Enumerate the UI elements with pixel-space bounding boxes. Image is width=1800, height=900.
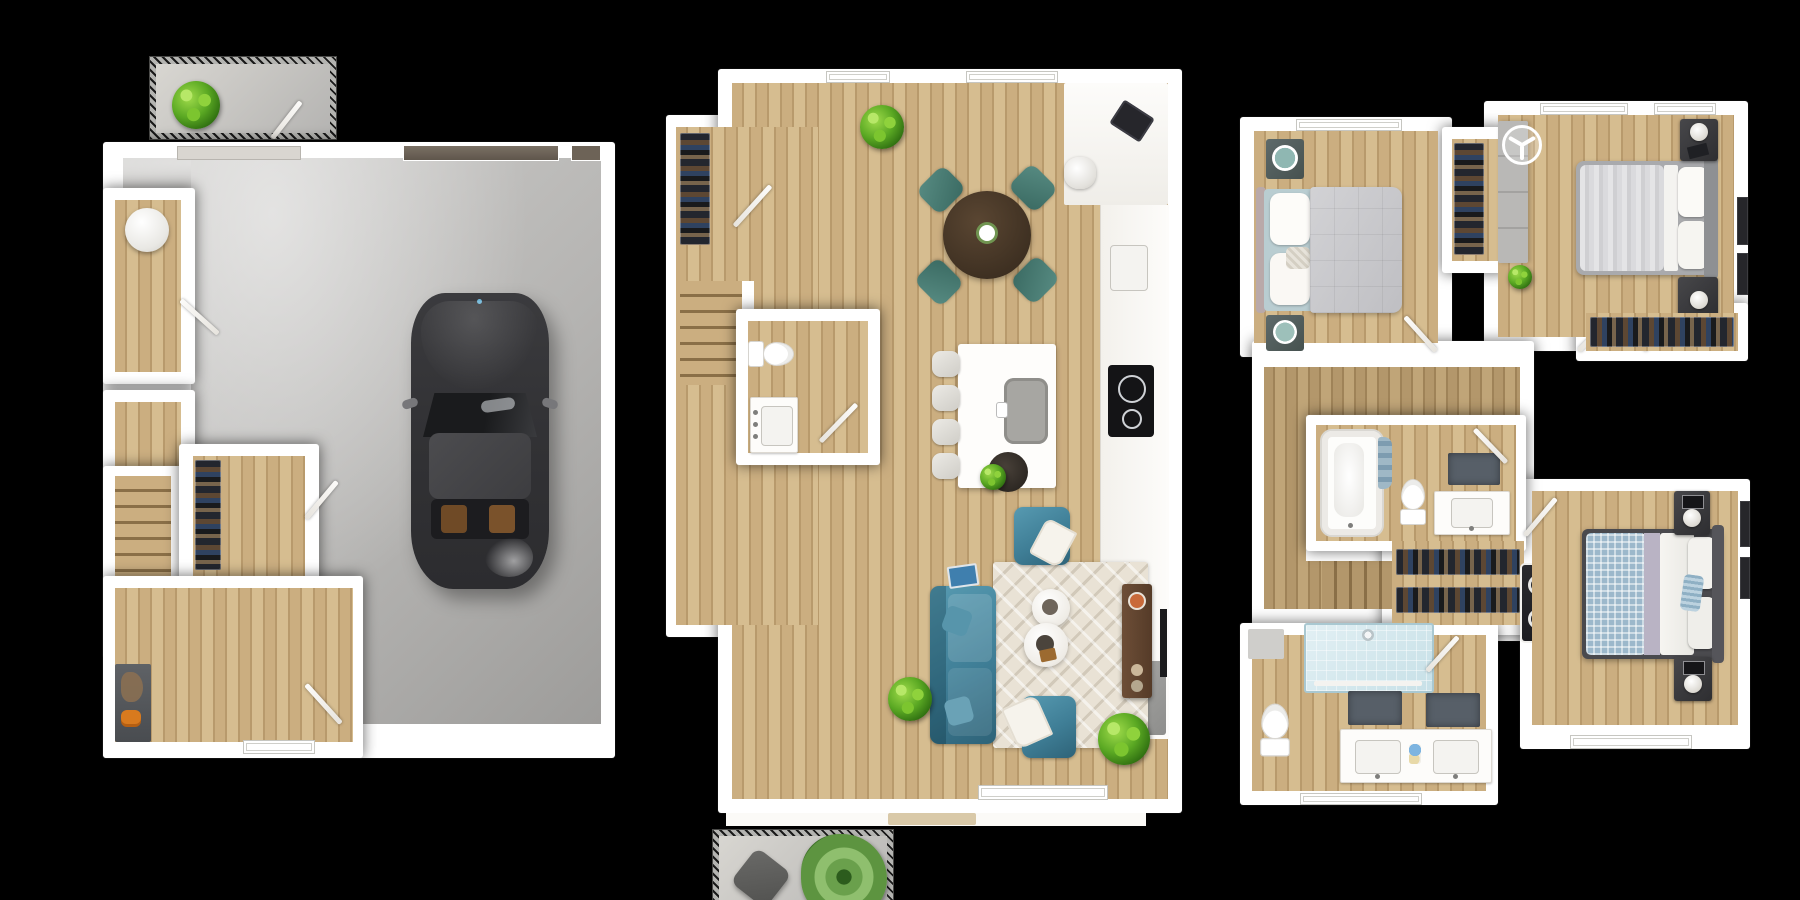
floor-1-garage-level — [103, 46, 620, 831]
duvet-gray — [1310, 187, 1402, 313]
windshield-glare — [480, 397, 515, 414]
pillow — [1270, 193, 1310, 245]
entry-plant — [860, 105, 904, 149]
stairs-down — [1322, 561, 1392, 609]
car-rear-shine — [485, 537, 533, 577]
toilet-bowl — [763, 342, 794, 366]
console-decor — [1130, 594, 1144, 608]
powder-toilet — [748, 341, 794, 367]
perfume-bottles — [1409, 744, 1421, 764]
island-faucet — [996, 402, 1008, 418]
bathtub — [1320, 429, 1384, 537]
shower-head — [1362, 629, 1374, 641]
coffee-table — [1032, 589, 1070, 627]
car — [411, 293, 549, 589]
sheet-fold — [1664, 165, 1678, 271]
wall-tv — [1160, 609, 1167, 677]
bar-stool — [932, 351, 960, 377]
kitchen-window-top — [966, 71, 1058, 83]
powder-faucet — [753, 410, 758, 415]
armchair — [1022, 696, 1076, 758]
vanity-sink — [1433, 740, 1479, 774]
bedroom-1-window — [1654, 103, 1716, 115]
hall-toilet — [1400, 479, 1426, 525]
tray — [1273, 320, 1297, 344]
entry-window-top — [826, 71, 890, 83]
armchair — [1014, 507, 1070, 565]
nightstand-lamp — [1680, 119, 1718, 161]
picture-frame — [1683, 661, 1705, 675]
car-roof — [429, 433, 531, 499]
nightstand-teal-tray — [1266, 139, 1304, 179]
tv-console — [1122, 584, 1152, 698]
coat-items — [121, 672, 143, 702]
nightstand-lamp — [1674, 491, 1710, 535]
double-vanity — [1340, 729, 1492, 783]
wall-frame — [1737, 197, 1748, 245]
tub-faucet — [1348, 523, 1353, 528]
balcony — [712, 829, 894, 900]
clothes-rack — [195, 460, 221, 570]
burner-large — [1118, 375, 1146, 403]
front-porch — [149, 56, 337, 140]
floor-3-bedroom-level — [1240, 101, 1750, 805]
garage-door-small — [571, 145, 601, 161]
floor-2-main-level — [666, 69, 1182, 900]
toilet-bowl — [1261, 704, 1289, 740]
console-decor — [1131, 680, 1143, 692]
car-seat-right — [489, 505, 515, 533]
herb-sprig — [980, 464, 1006, 490]
bath-mat — [1448, 453, 1500, 485]
vanity-faucet — [1375, 774, 1380, 779]
shoe-rack — [1396, 587, 1520, 613]
burner-small — [1122, 409, 1142, 429]
toilet-bowl — [1401, 479, 1425, 510]
vanity-sink — [1451, 498, 1493, 528]
nightstand-lamp — [1678, 277, 1718, 317]
living-window — [978, 785, 1108, 800]
tray — [1272, 145, 1298, 171]
door-mat — [888, 813, 976, 825]
cooktop — [1108, 365, 1154, 437]
ruffled-duvet — [1580, 165, 1664, 271]
garage-door — [403, 145, 559, 161]
coffee-table — [1024, 623, 1068, 667]
orange-shoes — [121, 710, 141, 724]
porch-plant — [172, 81, 220, 129]
shoe-rack — [1396, 549, 1520, 575]
bar-stool — [932, 385, 960, 411]
knit-pillow — [1286, 247, 1310, 269]
garage-window-recess — [177, 146, 301, 160]
bedroom-2-bed — [1256, 187, 1402, 313]
coat-console — [115, 664, 151, 742]
toilet-tank — [748, 341, 764, 367]
bath-mat — [1426, 693, 1480, 727]
powder-vanity — [750, 397, 798, 453]
lavender-fold — [1644, 533, 1660, 655]
bedroom-3-window — [1570, 735, 1692, 749]
primary-toilet — [1260, 704, 1290, 757]
vanity-faucet — [1453, 774, 1458, 779]
shower-curb — [1314, 681, 1422, 686]
sofa-back — [930, 586, 946, 744]
table-book — [1039, 647, 1057, 662]
blue-towels — [1378, 437, 1392, 489]
sofa — [930, 586, 996, 744]
bedroom-2-window — [1296, 119, 1402, 131]
car-seat-left — [441, 505, 467, 533]
bedroom-3-bed — [1582, 529, 1722, 659]
ceiling-fan — [1502, 125, 1542, 165]
tub-basin — [1334, 443, 1364, 517]
lamp — [1683, 509, 1701, 527]
table-vase — [979, 225, 995, 241]
wall-frame — [1737, 253, 1748, 295]
lamp — [1690, 123, 1708, 141]
water-heater — [125, 208, 169, 252]
powder-faucet — [753, 422, 758, 427]
hall-vanity — [1434, 491, 1510, 535]
bedroom-1-window — [1540, 103, 1628, 115]
bar-stool — [932, 419, 960, 445]
wall-frame — [1740, 557, 1750, 599]
nightstand-lamp — [1674, 657, 1712, 701]
bar-stool — [932, 453, 960, 479]
mid-closet-clothes — [1454, 143, 1484, 255]
car-hood-shine — [421, 301, 539, 391]
plaid-blanket — [1586, 533, 1646, 655]
entry-door-threshold — [243, 740, 315, 754]
vanity-faucet — [1469, 526, 1474, 531]
counter-sink — [1110, 245, 1148, 291]
kitchen-island — [958, 344, 1056, 488]
nightstand-teal-tray — [1266, 315, 1304, 351]
lamp — [1690, 291, 1708, 309]
toilet-tank — [1400, 509, 1426, 525]
island-sink — [1004, 378, 1048, 444]
vanity-sink — [1355, 740, 1401, 774]
living-plant — [1098, 713, 1150, 765]
walk-in-shower — [1304, 623, 1434, 693]
car-windshield — [423, 393, 537, 437]
toilet-tank — [1260, 738, 1290, 756]
powder-sink — [761, 406, 793, 446]
bedroom-1-bed — [1576, 161, 1716, 275]
bath-mat — [1348, 691, 1402, 725]
car-rear-window — [431, 499, 529, 539]
coat-closet-clothes — [680, 133, 710, 245]
powder-faucet — [753, 434, 758, 439]
bath-counter-gray — [1248, 629, 1284, 659]
floor-plan-canvas — [0, 0, 1800, 900]
book — [1687, 143, 1709, 159]
sofa-side-book — [947, 563, 980, 589]
stairs-down — [680, 281, 742, 385]
table-tray — [1042, 599, 1058, 615]
desk-chair — [1064, 157, 1096, 189]
dining-table — [943, 191, 1031, 279]
wall-frame — [1740, 501, 1750, 547]
headboard — [1712, 525, 1724, 663]
picture-frame — [1682, 495, 1704, 509]
living-plant — [888, 677, 932, 721]
walk-in-clothes — [1590, 317, 1734, 347]
primary-bath-window — [1300, 793, 1422, 805]
hallway-top — [1264, 367, 1520, 419]
headboard — [1704, 157, 1718, 279]
lamp — [1684, 675, 1702, 693]
console-decor — [1131, 664, 1143, 676]
bedroom-1-plant — [1508, 265, 1532, 289]
